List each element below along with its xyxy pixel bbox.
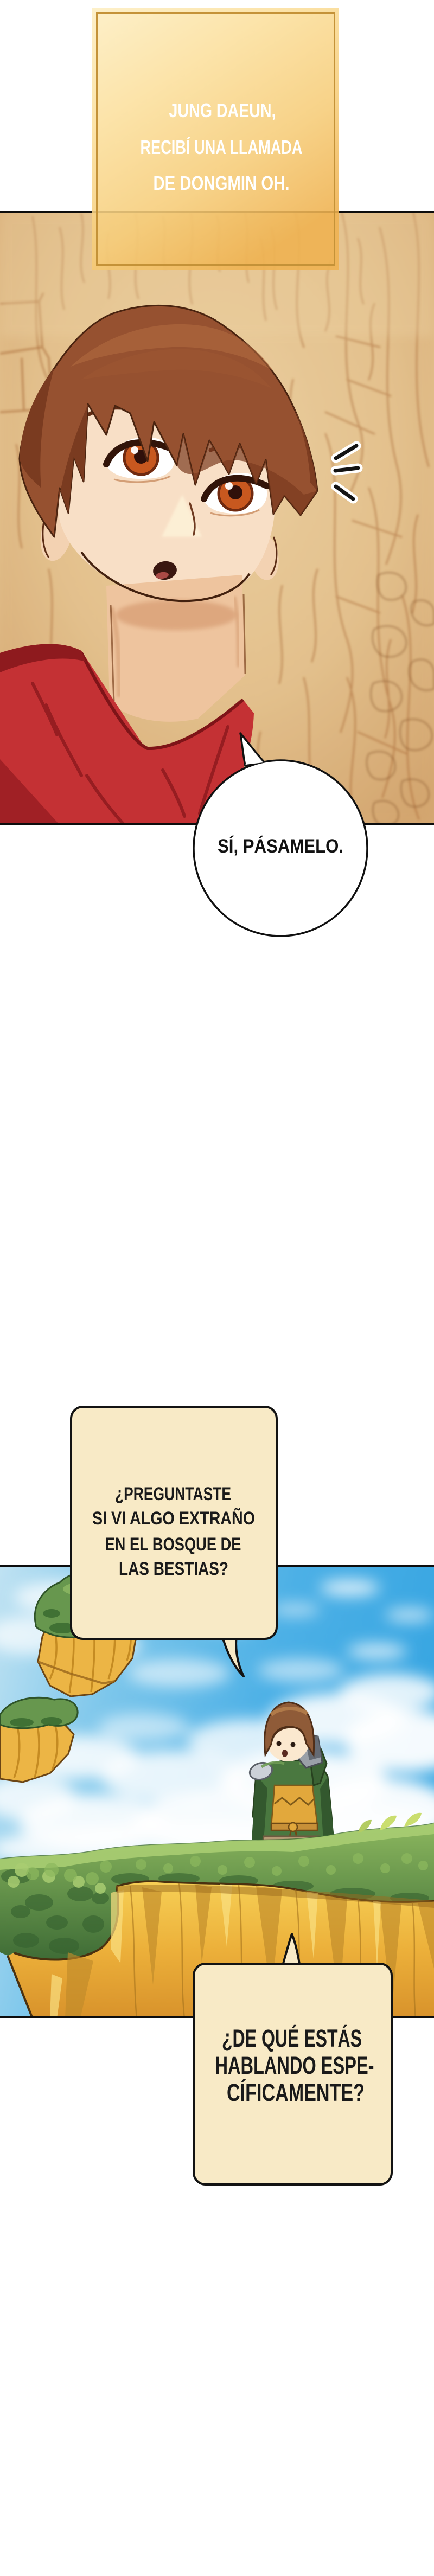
svg-text:SÍ, PÁSAMELO.: SÍ, PÁSAMELO. (218, 835, 343, 857)
svg-text:¿DE QUÉ ESTÁS: ¿DE QUÉ ESTÁS (222, 2024, 362, 2052)
svg-text:JUNG DAEUN,: JUNG DAEUN, (169, 99, 276, 121)
svg-text:EN EL BOSQUE DE: EN EL BOSQUE DE (105, 1534, 241, 1555)
svg-text:RECIBÍ UNA LLAMADA: RECIBÍ UNA LLAMADA (141, 136, 303, 158)
svg-text:SI VI ALGO EXTRAÑO: SI VI ALGO EXTRAÑO (92, 1508, 255, 1529)
svg-text:DE DONGMIN OH.: DE DONGMIN OH. (154, 172, 290, 194)
svg-text:CÍFICAMENTE?: CÍFICAMENTE? (227, 2079, 365, 2106)
svg-text:¿PREGUNTASTE: ¿PREGUNTASTE (115, 1484, 231, 1504)
svg-text:HABLANDO ESPE-: HABLANDO ESPE- (215, 2052, 374, 2079)
svg-text:LAS BESTIAS?: LAS BESTIAS? (119, 1559, 228, 1579)
